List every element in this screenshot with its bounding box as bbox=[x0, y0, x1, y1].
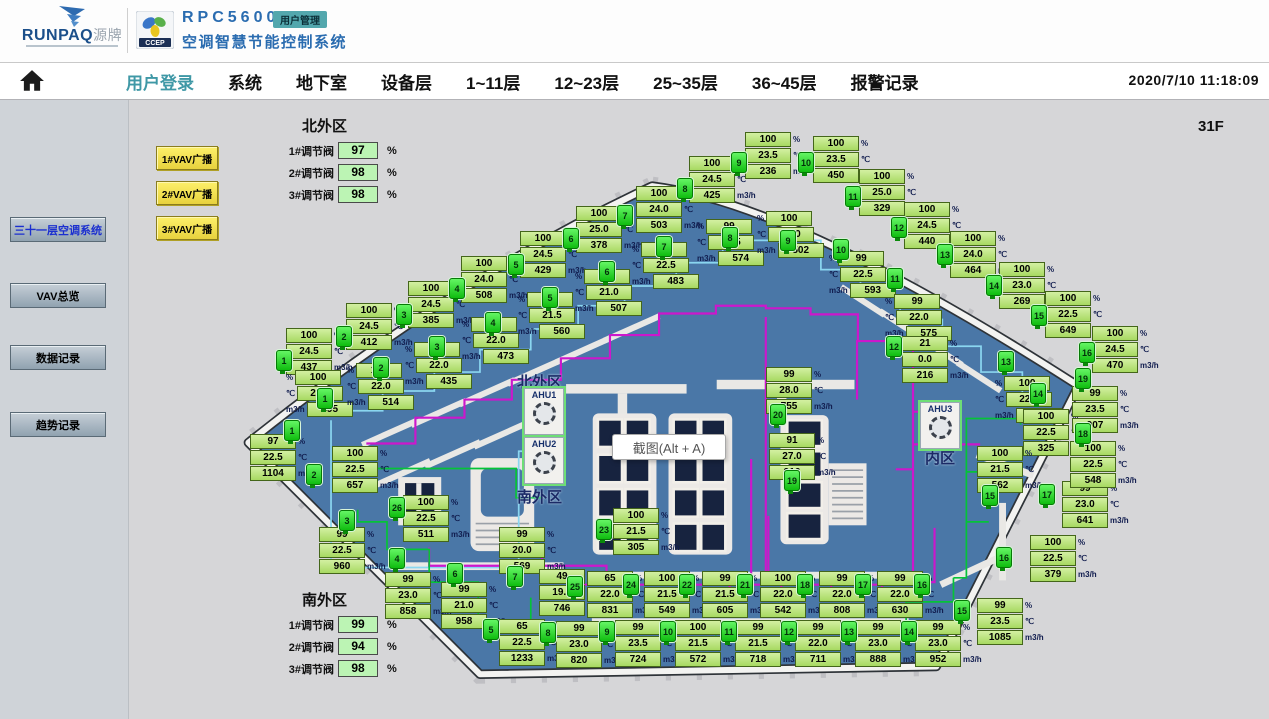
vav-unit-icon[interactable]: 11 bbox=[845, 186, 861, 207]
vav-unit-icon[interactable]: 1 bbox=[276, 350, 292, 371]
nav-tab-6[interactable]: 12~23层 bbox=[554, 69, 619, 94]
readout-row: 24.0℃ bbox=[950, 246, 1019, 262]
readout-row: 305m3/h bbox=[613, 539, 682, 555]
readout-unit: m3/h bbox=[1078, 570, 1097, 579]
readout-unit: % bbox=[907, 172, 914, 181]
readout-value: 21.5 bbox=[529, 308, 575, 323]
readout-value: 100 bbox=[332, 446, 378, 461]
readout-value: 21.5 bbox=[735, 636, 781, 651]
readout-row: 0.0℃ bbox=[902, 351, 971, 367]
nav-tab-3[interactable]: 地下室 bbox=[296, 69, 347, 94]
readout-value: 23.0 bbox=[385, 588, 431, 603]
readout-value: 858 bbox=[385, 604, 431, 619]
vav-unit-icon[interactable]: 22 bbox=[679, 574, 695, 595]
readout-value: 100 bbox=[520, 231, 566, 246]
vav-unit-icon[interactable]: 3 bbox=[339, 510, 355, 531]
readout-value: 473 bbox=[483, 349, 529, 364]
readout-value: 23.5 bbox=[745, 148, 791, 163]
readout-row: 99% bbox=[883, 293, 952, 309]
nav-tab-5[interactable]: 1~11层 bbox=[466, 69, 520, 94]
vav-unit-icon[interactable]: 11 bbox=[887, 268, 903, 289]
vav-unit-icon[interactable]: 14 bbox=[901, 621, 917, 642]
vav-unit-icon[interactable]: 5 bbox=[542, 287, 558, 308]
readout-row: 100% bbox=[755, 210, 824, 226]
vav-unit-icon[interactable]: 15 bbox=[982, 485, 998, 506]
vav-readout: 100%22.5℃548m3/h bbox=[1070, 440, 1139, 488]
readout-row: 99% bbox=[915, 619, 984, 635]
readout-value: 99 bbox=[385, 572, 431, 587]
readout-unit: ℃ bbox=[367, 546, 376, 555]
readout-value: 1233 bbox=[499, 651, 545, 666]
runpaq-logo-icon bbox=[55, 4, 89, 28]
readout-unit: % bbox=[885, 297, 892, 306]
ccep-logo-icon: CCEP bbox=[136, 11, 174, 49]
readout-unit: m3/h bbox=[380, 481, 399, 490]
readout-value: 24.5 bbox=[286, 344, 332, 359]
readout-value: 22.5 bbox=[403, 511, 449, 526]
readout-unit: ℃ bbox=[998, 250, 1007, 259]
readout-value: 99 bbox=[556, 621, 602, 636]
readout-unit: ℃ bbox=[963, 639, 972, 648]
readout-unit: m3/h bbox=[950, 371, 969, 380]
readout-value: 100 bbox=[1030, 535, 1076, 550]
readout-row: 99% bbox=[766, 366, 835, 382]
readout-value: 718 bbox=[735, 652, 781, 667]
readout-row: 711m3/h bbox=[795, 651, 864, 667]
readout-value: 23.0 bbox=[556, 637, 602, 652]
readout-row: 23.5℃ bbox=[813, 151, 882, 167]
ahu-label: AHU1 bbox=[532, 389, 557, 401]
readout-unit: % bbox=[1025, 601, 1032, 610]
valve-label: 2#调节阀 bbox=[246, 639, 334, 655]
readout-unit: ℃ bbox=[1047, 281, 1056, 290]
readout-value: 429 bbox=[520, 263, 566, 278]
readout-value: 21.5 bbox=[977, 462, 1023, 477]
vav-unit-icon[interactable]: 12 bbox=[781, 621, 797, 642]
vav-unit-icon[interactable]: 14 bbox=[986, 275, 1002, 296]
readout-unit: ℃ bbox=[451, 514, 460, 523]
vav-readout: 100%22.5℃657m3/h bbox=[332, 445, 401, 493]
readout-value: 24.5 bbox=[904, 218, 950, 233]
readout-unit: ℃ bbox=[462, 336, 471, 345]
readout-unit: ℃ bbox=[995, 395, 1004, 404]
valve-unit: % bbox=[387, 619, 397, 631]
readout-unit: % bbox=[861, 139, 868, 148]
readout-value: 820 bbox=[556, 653, 602, 668]
readout-value: 100 bbox=[859, 169, 905, 184]
readout-row: 100% bbox=[1045, 290, 1114, 306]
readout-row: 952m3/h bbox=[915, 651, 984, 667]
vav-readout: 100%24.5℃470m3/h bbox=[1092, 325, 1161, 373]
readout-value: 99 bbox=[499, 527, 545, 542]
readout-unit: m3/h bbox=[575, 304, 594, 313]
vav-unit-icon[interactable]: 19 bbox=[1075, 368, 1091, 389]
readout-row: 22.5℃ bbox=[319, 542, 388, 558]
vav-unit-icon[interactable]: 19 bbox=[784, 470, 800, 491]
readout-row: 548m3/h bbox=[1070, 472, 1139, 488]
vav-unit-icon[interactable]: 4 bbox=[449, 278, 465, 299]
readout-unit: % bbox=[347, 366, 354, 375]
readout-row: 22.0℃ bbox=[883, 309, 952, 325]
readout-unit: % bbox=[547, 530, 554, 539]
nav-tab-9[interactable]: 报警记录 bbox=[851, 69, 919, 94]
app-window: RUNPAQ源牌 CCEP RPC5600 空调智慧节能控制系统 用户管理 用户… bbox=[0, 0, 1269, 719]
readout-value: 99 bbox=[894, 294, 940, 309]
brand-name: RUNPAQ bbox=[22, 27, 93, 44]
readout-value: 808 bbox=[819, 603, 865, 618]
readout-unit: ℃ bbox=[829, 270, 838, 279]
readout-value: 425 bbox=[689, 188, 735, 203]
readout-unit: m3/h bbox=[963, 655, 982, 664]
readout-value: 952 bbox=[915, 652, 961, 667]
readout-value: 20.0 bbox=[499, 543, 545, 558]
readout-value: 100 bbox=[576, 206, 622, 221]
readout-value: 379 bbox=[1030, 567, 1076, 582]
vav-unit-icon[interactable]: 13 bbox=[937, 244, 953, 265]
vav-unit-icon[interactable]: 1 bbox=[284, 420, 300, 441]
readout-row: 100% bbox=[977, 445, 1046, 461]
readout-value: 21.0 bbox=[586, 285, 632, 300]
readout-value: 100 bbox=[689, 156, 735, 171]
readout-row: 21% bbox=[902, 335, 971, 351]
readout-unit: % bbox=[995, 379, 1002, 388]
vav-unit-icon[interactable]: 5 bbox=[483, 619, 499, 640]
readout-unit: % bbox=[952, 205, 959, 214]
readout-row: 100% bbox=[284, 369, 353, 385]
south-valve-panel: 南外区 1#调节阀99%2#调节阀94%3#调节阀98% bbox=[246, 589, 406, 682]
vav-unit-icon[interactable]: 7 bbox=[617, 205, 633, 226]
readout-row: 22.5℃ bbox=[1030, 550, 1099, 566]
readout-unit: % bbox=[433, 575, 440, 584]
readout-unit: m3/h bbox=[632, 277, 651, 286]
vav-broadcast-button-2[interactable]: 2#VAV广播 bbox=[156, 181, 218, 205]
readout-row: 511m3/h bbox=[403, 526, 472, 542]
valve-row: 1#调节阀97% bbox=[246, 142, 406, 159]
readout-unit: ℃ bbox=[1110, 500, 1119, 509]
user-management-button[interactable]: 用户管理 bbox=[273, 11, 327, 28]
readout-unit: % bbox=[405, 345, 412, 354]
readout-unit: m3/h bbox=[518, 327, 537, 336]
readout-row: 100% bbox=[576, 205, 645, 221]
screenshot-tooltip: 截图(Alt + A) bbox=[612, 434, 726, 460]
readout-row: 425m3/h bbox=[689, 187, 758, 203]
readout-value: 22.0 bbox=[795, 636, 841, 651]
readout-value: 23.5 bbox=[1072, 402, 1118, 417]
readout-unit: % bbox=[286, 373, 293, 382]
vav-unit-icon[interactable]: 2 bbox=[336, 326, 352, 347]
readout-value: 100 bbox=[461, 256, 507, 271]
readout-value: 24.0 bbox=[636, 202, 682, 217]
vav-unit-icon[interactable]: 15 bbox=[1031, 305, 1047, 326]
vav-unit-icon[interactable]: 10 bbox=[833, 239, 849, 260]
vav-unit-icon[interactable]: 4 bbox=[485, 312, 501, 333]
datetime: 2020/7/10 11:18:09 bbox=[1129, 72, 1259, 88]
readout-value: 100 bbox=[745, 132, 791, 147]
readout-value: 24.5 bbox=[408, 297, 454, 312]
vav-unit-icon[interactable]: 23 bbox=[596, 519, 612, 540]
readout-value: 28.0 bbox=[766, 383, 812, 398]
vav-unit-icon[interactable]: 3 bbox=[396, 304, 412, 325]
readout-unit: % bbox=[1078, 538, 1085, 547]
readout-row: 473m3/h bbox=[460, 348, 529, 364]
readout-unit: % bbox=[1118, 444, 1125, 453]
valve-row: 3#调节阀98% bbox=[246, 660, 406, 677]
readout-value: 21.5 bbox=[675, 636, 721, 651]
readout-row: 100% bbox=[1092, 325, 1161, 341]
readout-row: 100% bbox=[332, 445, 401, 461]
readout-value: 24.5 bbox=[520, 247, 566, 262]
ahu-unit[interactable]: AHU1 bbox=[524, 388, 564, 435]
readout-unit: m3/h bbox=[1118, 476, 1137, 485]
readout-value: 711 bbox=[795, 652, 841, 667]
readout-unit: % bbox=[489, 585, 496, 594]
readout-unit: m3/h bbox=[1120, 421, 1139, 430]
readout-unit: ℃ bbox=[380, 465, 389, 474]
readout-unit: ℃ bbox=[885, 313, 894, 322]
vav-unit-icon[interactable]: 3 bbox=[429, 336, 445, 357]
vav-unit-icon[interactable]: 2 bbox=[306, 464, 322, 485]
vav-unit-icon[interactable]: 8 bbox=[677, 178, 693, 199]
valve-unit: % bbox=[387, 189, 397, 201]
valve-label: 3#调节阀 bbox=[246, 661, 334, 677]
vav-unit-icon[interactable]: 2 bbox=[373, 357, 389, 378]
readout-value: 236 bbox=[745, 164, 791, 179]
readout-unit: m3/h bbox=[817, 468, 836, 477]
readout-row: 657m3/h bbox=[332, 477, 401, 493]
vav-unit-icon[interactable]: 14 bbox=[1030, 383, 1046, 404]
vav-broadcast-button-3[interactable]: 3#VAV广播 bbox=[156, 216, 218, 240]
readout-value: 99 bbox=[766, 367, 812, 382]
vav-unit-icon[interactable]: 7 bbox=[507, 566, 523, 587]
vav-unit-icon[interactable]: 15 bbox=[954, 600, 970, 621]
vav-unit-icon[interactable]: 7 bbox=[656, 236, 672, 257]
vav-unit-icon[interactable]: 16 bbox=[996, 547, 1012, 568]
readout-value: 470 bbox=[1092, 358, 1138, 373]
vav-unit-icon[interactable]: 11 bbox=[721, 621, 737, 642]
readout-unit: ℃ bbox=[518, 311, 527, 320]
readout-row: 91% bbox=[769, 432, 838, 448]
vav-unit-icon[interactable]: 9 bbox=[780, 230, 796, 251]
readout-unit: ℃ bbox=[286, 389, 295, 398]
readout-unit: m3/h bbox=[1025, 633, 1044, 642]
readout-unit: % bbox=[1093, 294, 1100, 303]
readout-row: 22.5℃ bbox=[332, 461, 401, 477]
vav-unit-icon[interactable]: 5 bbox=[508, 254, 524, 275]
readout-unit: ℃ bbox=[950, 355, 959, 364]
readout-row: 23.0℃ bbox=[915, 635, 984, 651]
readout-value: 435 bbox=[426, 374, 472, 389]
vav-readout: 99%23.5℃1085m3/h bbox=[977, 597, 1046, 645]
readout-unit: m3/h bbox=[757, 246, 776, 255]
readout-unit: m3/h bbox=[347, 398, 366, 407]
readout-row: 100% bbox=[613, 507, 682, 523]
nav-tab-2[interactable]: 系统 bbox=[228, 69, 262, 94]
ahu-label: AHU3 bbox=[928, 403, 953, 415]
readout-value: 450 bbox=[813, 168, 859, 183]
vav-unit-icon[interactable]: 20 bbox=[770, 404, 786, 425]
readout-unit: m3/h bbox=[995, 411, 1014, 420]
readout-unit: ℃ bbox=[814, 386, 823, 395]
vav-unit-icon[interactable]: 12 bbox=[891, 217, 907, 238]
readout-value: 99 bbox=[977, 598, 1023, 613]
readout-unit: ℃ bbox=[1118, 460, 1127, 469]
readout-value: 65 bbox=[499, 619, 545, 634]
readout-value: 100 bbox=[675, 620, 721, 635]
vav-unit-icon[interactable]: 10 bbox=[660, 621, 676, 642]
valve-value: 98 bbox=[338, 186, 378, 203]
vav-unit-icon[interactable]: 6 bbox=[447, 563, 463, 584]
readout-value: 100 bbox=[1045, 291, 1091, 306]
vav-unit-icon[interactable]: 9 bbox=[599, 621, 615, 642]
readout-unit: ℃ bbox=[632, 261, 641, 270]
vav-unit-icon[interactable]: 12 bbox=[886, 336, 902, 357]
valve-unit: % bbox=[387, 145, 397, 157]
valve-label: 1#调节阀 bbox=[246, 143, 334, 159]
readout-row: 100% bbox=[745, 131, 814, 147]
readout-row: 572m3/h bbox=[675, 651, 744, 667]
readout-value: 23.0 bbox=[1062, 497, 1108, 512]
readout-value: 23.5 bbox=[977, 614, 1023, 629]
readout-row: 560m3/h bbox=[516, 323, 585, 339]
nav-tab-7[interactable]: 25~35层 bbox=[653, 69, 718, 94]
readout-row: 25.0℃ bbox=[576, 221, 645, 237]
brand-underline bbox=[26, 45, 118, 47]
readout-value: 216 bbox=[902, 368, 948, 383]
readout-row: 22.5℃ bbox=[1070, 456, 1139, 472]
readout-value: 23.0 bbox=[999, 278, 1045, 293]
vav-broadcast-button-1[interactable]: 1#VAV广播 bbox=[156, 146, 218, 170]
readout-value: 22.0 bbox=[473, 333, 519, 348]
vav-readout: 99%22.0℃575m3/h bbox=[883, 293, 952, 341]
readout-unit: % bbox=[757, 214, 764, 223]
vav-unit-icon[interactable]: 17 bbox=[855, 574, 871, 595]
readout-value: 100 bbox=[813, 136, 859, 151]
readout-row: 99% bbox=[499, 526, 568, 542]
readout-row: 23.0℃ bbox=[1062, 496, 1131, 512]
runpaq-logo: RUNPAQ源牌 bbox=[18, 4, 126, 47]
readout-unit: m3/h bbox=[814, 402, 833, 411]
model-number: RPC5600 bbox=[182, 9, 279, 27]
ahu-unit[interactable]: AHU2 bbox=[524, 437, 564, 484]
nav-tabs: 用户登录系统地下室设备层1~11层12~23层25~35层36~45层报警记录 bbox=[126, 63, 919, 99]
ahu-label: AHU2 bbox=[532, 438, 557, 450]
readout-row: 22.5℃ bbox=[250, 449, 319, 465]
vav-unit-icon[interactable]: 13 bbox=[841, 621, 857, 642]
readout-row: 21.0℃ bbox=[441, 597, 510, 613]
readout-value: 100 bbox=[636, 186, 682, 201]
readout-unit: m3/h bbox=[829, 286, 848, 295]
readout-value: 99 bbox=[795, 620, 841, 635]
readout-value: 100 bbox=[1023, 409, 1069, 424]
vav-unit-icon[interactable]: 6 bbox=[599, 261, 615, 282]
readout-value: 23.5 bbox=[813, 152, 859, 167]
readout-unit: % bbox=[793, 135, 800, 144]
readout-value: 888 bbox=[855, 652, 901, 667]
vav-unit-icon[interactable]: 13 bbox=[998, 351, 1014, 372]
vav-broadcast-buttons: 1#VAV广播2#VAV广播3#VAV广播 bbox=[156, 146, 218, 251]
readout-value: 0.0 bbox=[902, 352, 948, 367]
readout-value: 25.0 bbox=[576, 222, 622, 237]
vav-unit-icon[interactable]: 6 bbox=[563, 228, 579, 249]
readout-value: 641 bbox=[1062, 513, 1108, 528]
readout-value: 483 bbox=[653, 274, 699, 289]
vav-unit-icon[interactable]: 1 bbox=[317, 388, 333, 409]
valve-value: 97 bbox=[338, 142, 378, 159]
readout-value: 91 bbox=[769, 433, 815, 448]
readout-unit: % bbox=[1120, 389, 1127, 398]
vav-unit-icon[interactable]: 16 bbox=[1079, 342, 1095, 363]
readout-value: 23.0 bbox=[915, 636, 961, 651]
nav-tab-4[interactable]: 设备层 bbox=[381, 69, 432, 94]
readout-unit: ℃ bbox=[952, 221, 961, 230]
readout-value: 657 bbox=[332, 478, 378, 493]
navbar: 用户登录系统地下室设备层1~11层12~23层25~35层36~45层报警记录 … bbox=[0, 63, 1269, 100]
nav-tab-1[interactable]: 用户登录 bbox=[126, 69, 194, 94]
vav-unit-icon[interactable]: 18 bbox=[1075, 423, 1091, 444]
readout-unit: ℃ bbox=[1025, 465, 1034, 474]
readout-unit: ℃ bbox=[1120, 405, 1129, 414]
ahu-unit[interactable]: AHU3 bbox=[920, 402, 960, 449]
readout-value: 1085 bbox=[977, 630, 1023, 645]
readout-value: 507 bbox=[596, 301, 642, 316]
vav-unit-icon[interactable]: 9 bbox=[731, 152, 747, 173]
readout-unit: % bbox=[661, 511, 668, 520]
vav-unit-icon[interactable]: 8 bbox=[540, 622, 556, 643]
readout-value: 100 bbox=[950, 231, 996, 246]
vav-unit-icon[interactable]: 10 bbox=[798, 152, 814, 173]
vav-unit-icon[interactable]: 21 bbox=[737, 574, 753, 595]
readout-value: 22.5 bbox=[250, 450, 296, 465]
readout-row: 574m3/h bbox=[695, 250, 764, 266]
valve-value: 99 bbox=[338, 616, 378, 633]
readout-unit: % bbox=[380, 449, 387, 458]
valve-row: 2#调节阀94% bbox=[246, 638, 406, 655]
home-button[interactable] bbox=[10, 64, 54, 97]
vav-unit-icon[interactable]: 24 bbox=[623, 574, 639, 595]
readout-unit: ℃ bbox=[575, 288, 584, 297]
vav-readout: 100%21.5℃305m3/h bbox=[613, 507, 682, 555]
vav-unit-icon[interactable]: 18 bbox=[797, 574, 813, 595]
vav-unit-icon[interactable]: 17 bbox=[1039, 484, 1055, 505]
vav-unit-icon[interactable]: 25 bbox=[567, 576, 583, 597]
readout-row: 507m3/h bbox=[573, 300, 642, 316]
readout-unit: ℃ bbox=[347, 382, 356, 391]
readout-row: 100% bbox=[999, 261, 1068, 277]
ccep-text: CCEP bbox=[145, 40, 165, 47]
readout-value: 100 bbox=[766, 211, 812, 226]
readout-value: 305 bbox=[613, 540, 659, 555]
readout-value: 100 bbox=[295, 370, 341, 385]
readout-value: 22.5 bbox=[643, 258, 689, 273]
vav-unit-icon[interactable]: 4 bbox=[389, 548, 405, 569]
readout-row: 22.5℃ bbox=[1045, 306, 1114, 322]
readout-value: 605 bbox=[702, 603, 748, 618]
readout-unit: % bbox=[575, 272, 582, 281]
readout-row: 216m3/h bbox=[902, 367, 971, 383]
readout-value: 22.5 bbox=[499, 635, 545, 650]
readout-row: 99% bbox=[877, 570, 946, 586]
readout-row: 641m3/h bbox=[1062, 512, 1131, 528]
readout-value: 329 bbox=[859, 201, 905, 216]
vav-unit-icon[interactable]: 8 bbox=[722, 227, 738, 248]
readout-value: 831 bbox=[587, 603, 633, 618]
vav-unit-icon[interactable]: 16 bbox=[914, 574, 930, 595]
nav-tab-8[interactable]: 36~45层 bbox=[752, 69, 817, 94]
vav-unit-icon[interactable]: 26 bbox=[389, 497, 405, 518]
readout-unit: % bbox=[814, 370, 821, 379]
valve-label: 2#调节阀 bbox=[246, 165, 334, 181]
readout-row: 99% bbox=[977, 597, 1046, 613]
